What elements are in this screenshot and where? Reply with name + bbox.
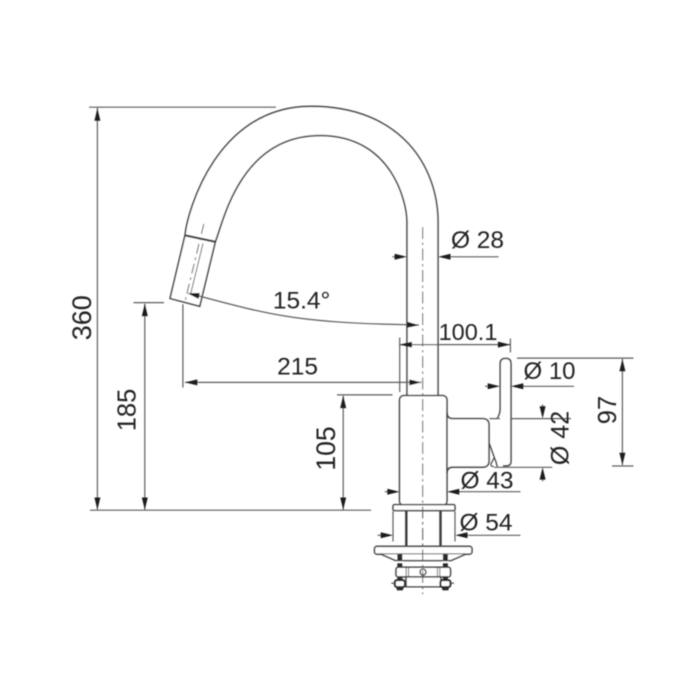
svg-text:360: 360: [67, 295, 97, 340]
svg-text:Ø 42: Ø 42: [546, 411, 574, 465]
svg-text:15.4°: 15.4°: [273, 287, 330, 314]
svg-text:97: 97: [594, 396, 622, 424]
svg-text:105: 105: [311, 426, 341, 470]
svg-text:Ø 43: Ø 43: [460, 468, 513, 495]
svg-text:100.1: 100.1: [439, 319, 498, 345]
svg-text:215: 215: [277, 353, 318, 380]
svg-text:Ø 10: Ø 10: [523, 358, 575, 385]
svg-text:Ø 54: Ø 54: [459, 510, 512, 537]
svg-text:185: 185: [114, 389, 142, 432]
svg-text:Ø 28: Ø 28: [451, 227, 504, 254]
